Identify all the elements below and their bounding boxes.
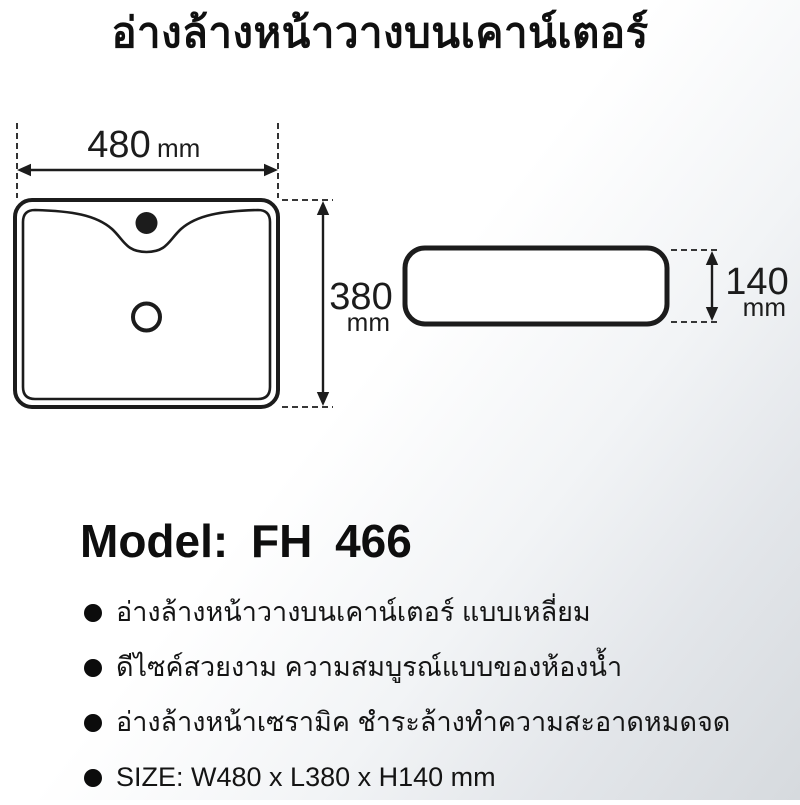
feature-item: SIZE: W480 x L380 x H140 mm [84, 750, 784, 805]
page-title: อ่างล้างหน้าวางบนเคาน์เตอร์ [0, 6, 760, 61]
height-dimension-arrow [706, 251, 718, 321]
side-profile-outline [405, 248, 667, 324]
feature-item: ดีไซค์สวยงาม ความสมบูรณ์แบบของห้องน้ำ [84, 640, 784, 695]
bullet-icon [84, 659, 102, 677]
feature-item: อ่างล้างหน้าเซรามิค ชำระล้างทำความสะอาดห… [84, 695, 784, 750]
bullet-icon [84, 714, 102, 732]
side-view-drawing: 140 mm [405, 248, 789, 324]
feature-text: อ่างล้างหน้าเซรามิค ชำระล้างทำความสะอาดห… [116, 706, 730, 738]
feature-text: อ่างล้างหน้าวางบนเคาน์เตอร์ แบบเหลี่ยม [116, 596, 591, 628]
technical-drawing: 480 mm 380 mm [0, 100, 800, 440]
bullet-icon [84, 769, 102, 787]
width-dimension-unit: mm [157, 133, 200, 163]
depth-dimension-arrow [317, 201, 329, 406]
feature-list: อ่างล้างหน้าวางบนเคาน์เตอร์ แบบเหลี่ยม ด… [84, 585, 784, 805]
product-spec-page: อ่างล้างหน้าวางบนเคาน์เตอร์ 480 mm [0, 0, 800, 800]
model-title: Model: FH 466 [80, 514, 412, 568]
feature-text: SIZE: W480 x L380 x H140 mm [116, 761, 496, 793]
faucet-hole [136, 212, 158, 234]
depth-dimension-unit: mm [347, 307, 390, 337]
bullet-icon [84, 604, 102, 622]
top-view-drawing: 480 mm 380 mm [15, 123, 393, 407]
drain-hole [133, 304, 160, 331]
feature-text: ดีไซค์สวยงาม ความสมบูรณ์แบบของห้องน้ำ [116, 651, 622, 683]
feature-item: อ่างล้างหน้าวางบนเคาน์เตอร์ แบบเหลี่ยม [84, 585, 784, 640]
height-dimension-unit: mm [743, 292, 786, 322]
width-dimension-value: 480 [87, 124, 150, 166]
